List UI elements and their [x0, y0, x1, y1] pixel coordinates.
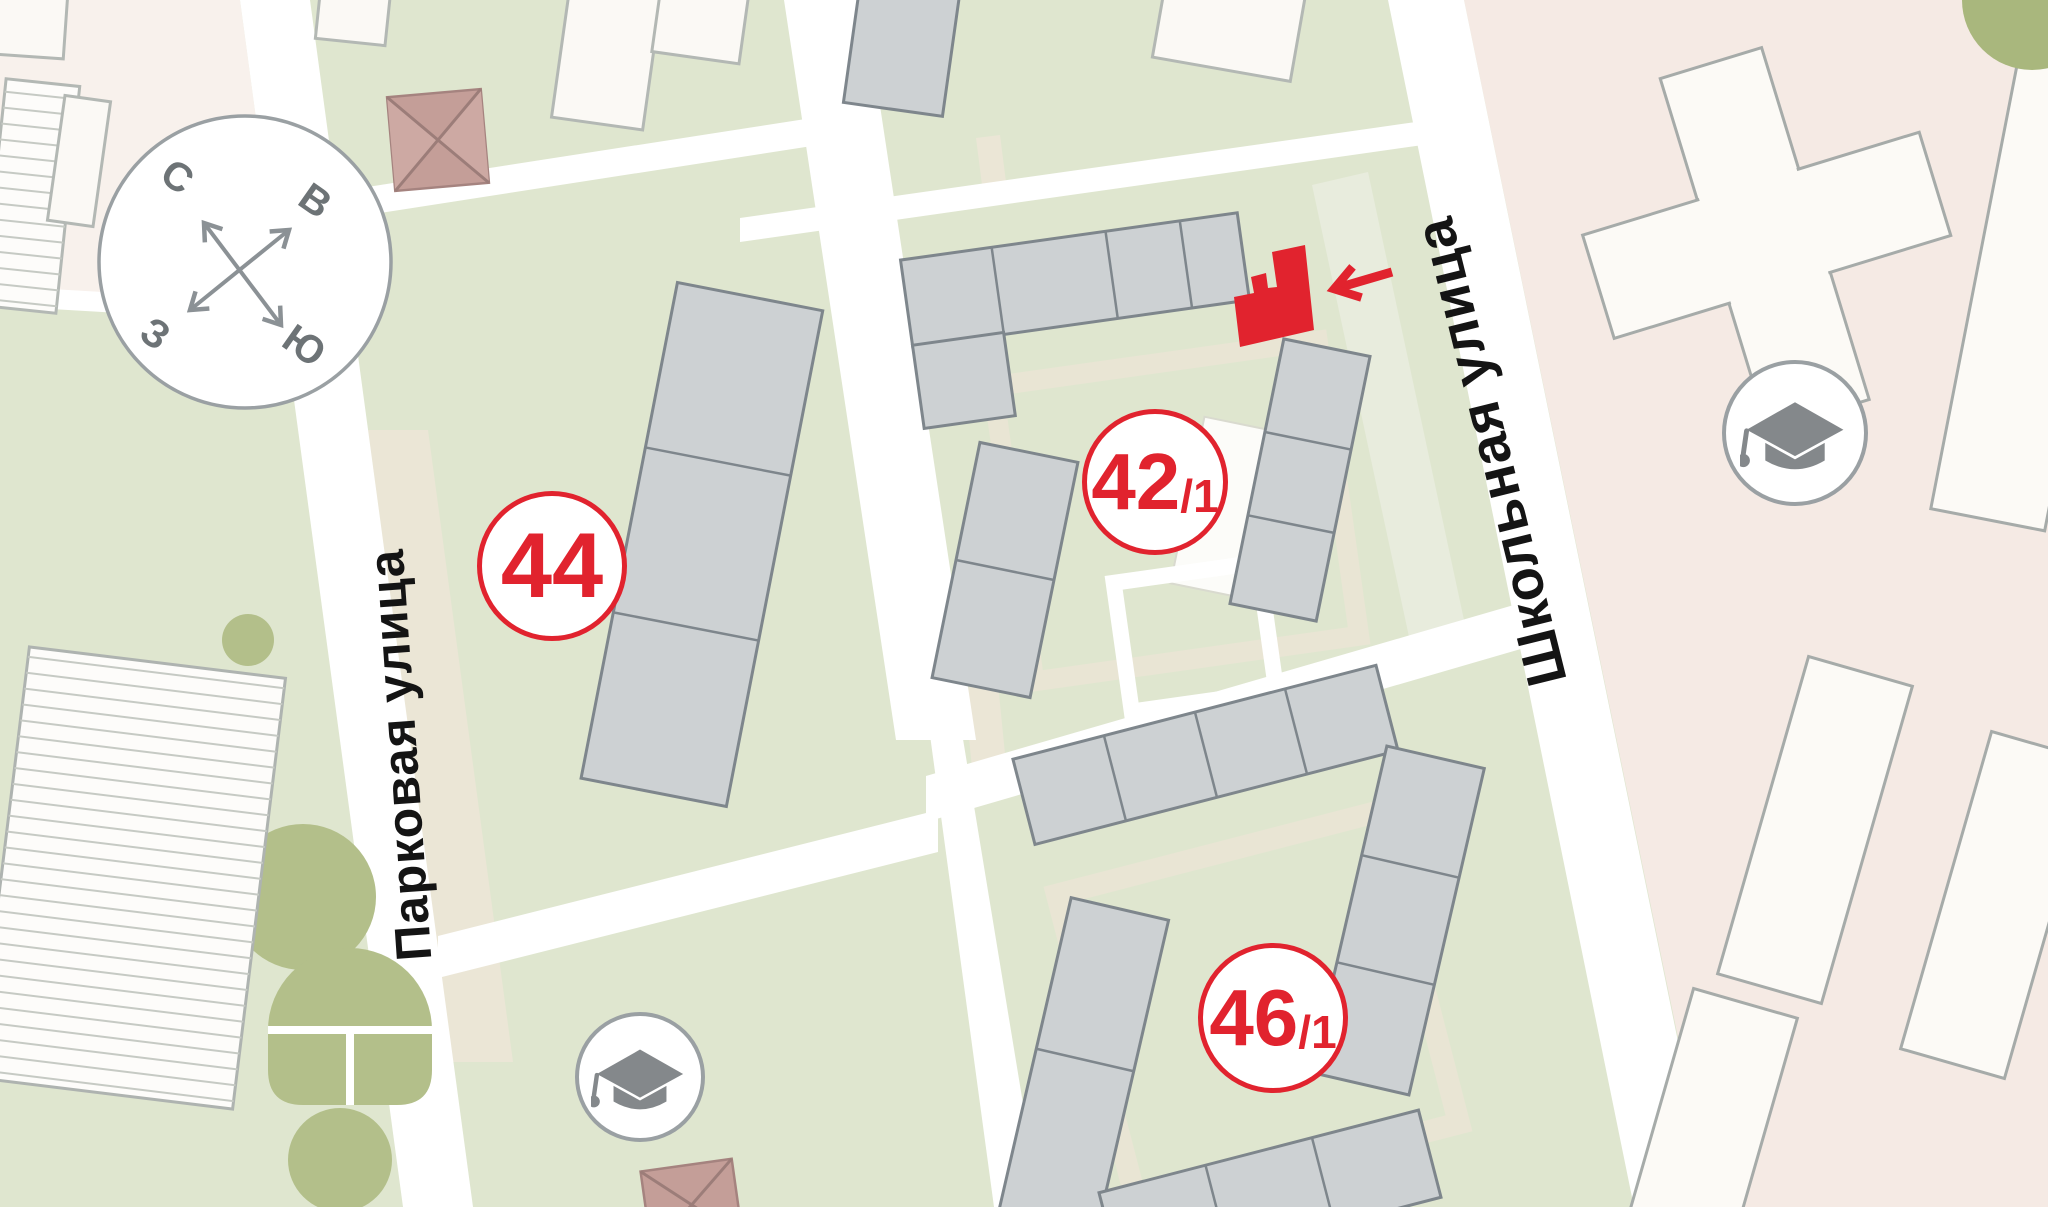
building-42-left-wing — [932, 442, 1078, 697]
edge-building — [652, 0, 750, 64]
house-number-suffix: /1 — [1298, 1009, 1336, 1055]
edge-building — [552, 0, 662, 130]
school-marker[interactable] — [1722, 360, 1868, 506]
building-46-left-wing — [999, 898, 1168, 1207]
graduation-cap-icon — [1740, 378, 1850, 488]
corner-building — [0, 0, 69, 59]
edge-building — [843, 0, 962, 116]
house-badge-42-1[interactable]: 42/1 — [1082, 409, 1228, 555]
school-marker[interactable] — [575, 1012, 705, 1142]
tree — [222, 614, 274, 666]
edge-building — [1152, 0, 1311, 81]
compass-rose — [99, 116, 391, 408]
site-map: С В З Ю Парковая улица Школьная улица 44… — [0, 0, 2048, 1207]
garage-building — [0, 647, 285, 1109]
map-canvas — [0, 0, 2048, 1207]
house-badge-46-1[interactable]: 46/1 — [1198, 943, 1348, 1093]
house-number-suffix: /1 — [1180, 473, 1218, 519]
house-number: 42 — [1091, 442, 1180, 522]
roof-building — [641, 1159, 743, 1207]
footpath — [976, 135, 1006, 185]
edge-building — [315, 0, 391, 46]
building-46-bottom-bar — [1099, 1110, 1441, 1207]
house-badge-44[interactable]: 44 — [477, 491, 627, 641]
roof-building — [387, 89, 489, 191]
road-south-lane-west — [438, 810, 938, 978]
tree — [288, 1108, 392, 1207]
house-number: 46 — [1209, 978, 1298, 1058]
highlighted-building[interactable] — [1234, 245, 1314, 347]
building-42-top-bar — [901, 213, 1261, 429]
house-number: 44 — [501, 520, 603, 612]
graduation-cap-icon — [591, 1028, 689, 1126]
